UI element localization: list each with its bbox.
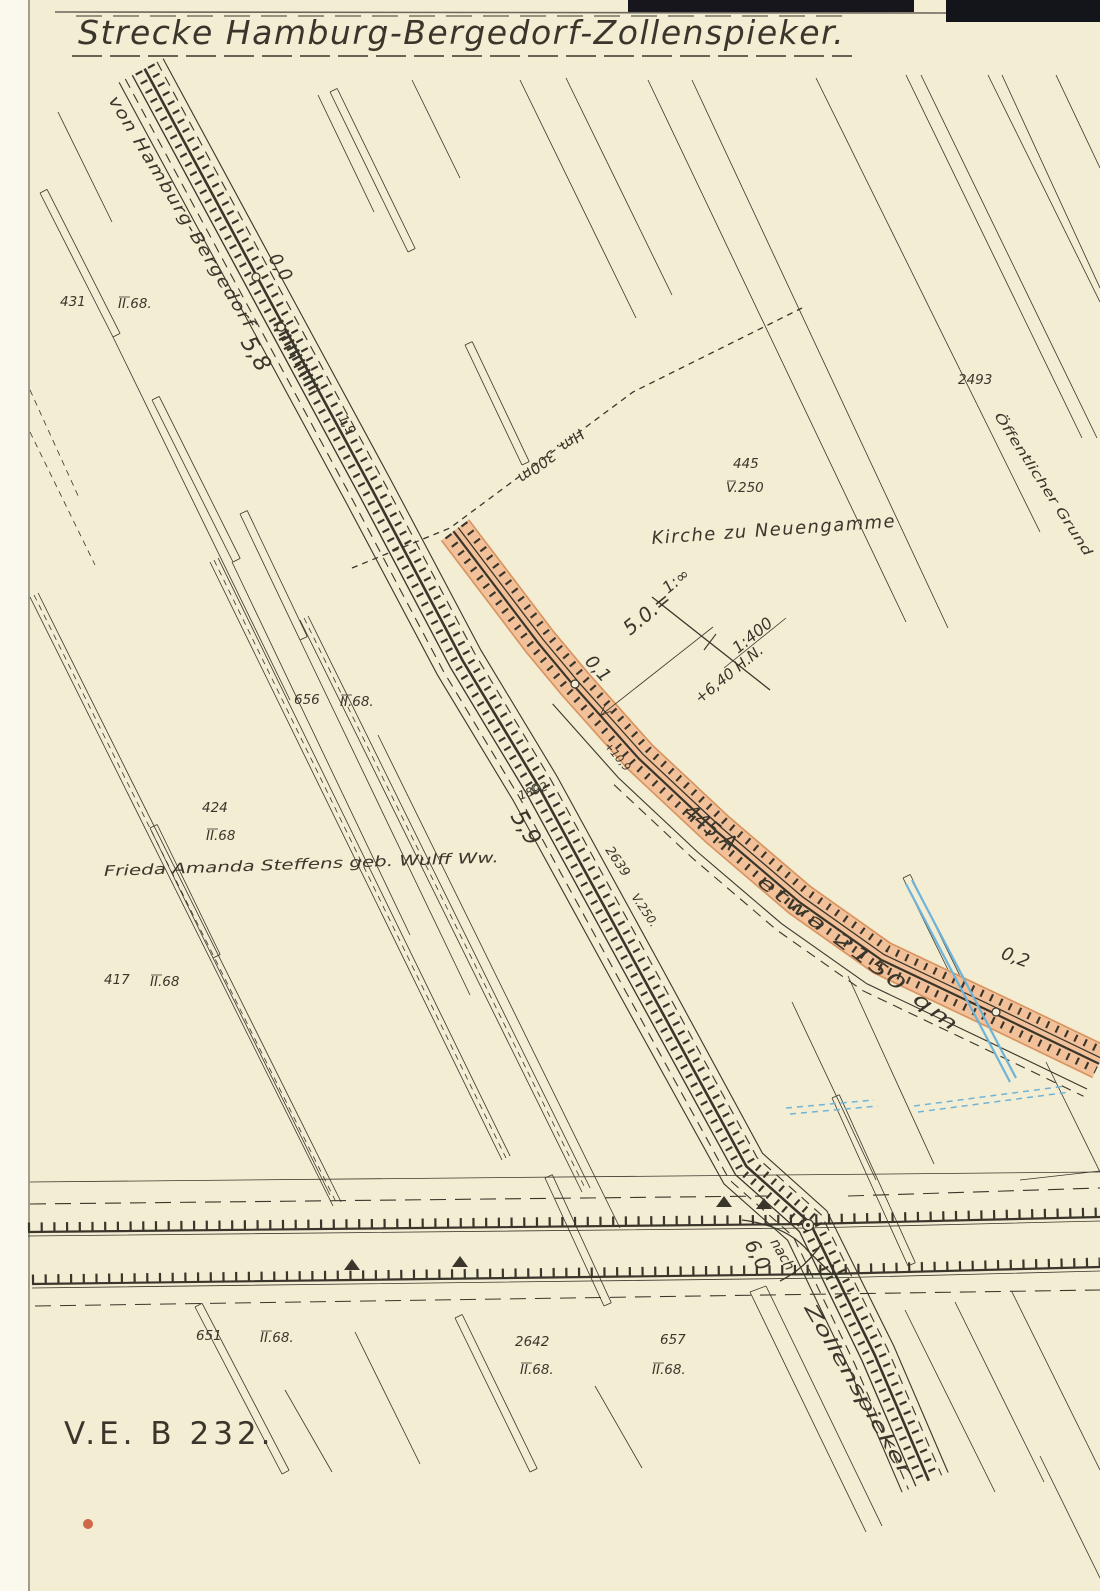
road-dashed [848,1188,1100,1196]
railway-layer [28,59,1100,1532]
ditch-line [30,597,333,1206]
ditch-bar-edge [47,189,120,333]
ditch-bar-edge [150,828,213,958]
ditch-bar-cap [40,189,47,193]
parcel-boundary-line [595,1386,642,1468]
parcel-boundary-line [285,1390,332,1472]
parcel-boundary-line [232,562,410,935]
parcel-657-class: II.68. [652,1362,686,1378]
parcel-lines-layer [30,75,1100,1578]
parcel-2639-number: 2639 [602,844,633,880]
parcel-boundary-line [520,80,636,318]
red-ink-dot [83,1519,93,1529]
ditch-bar-edge [472,342,529,462]
crossing-track-rail [28,1221,1100,1236]
ditch-bar-cap [604,1303,611,1306]
ditch-bar-cap [113,333,120,337]
parcel-boundary-line [692,80,948,628]
km-point-circle [277,323,285,331]
culvert-triangle [716,1196,732,1207]
parcel-2493-number: 2493 [958,372,992,388]
hectometer-note: Hm. 300m [514,425,588,487]
parcel-boundary-line [1040,1456,1100,1578]
gradient-height: +6,40 H.N. [691,641,767,707]
ditch-bar-cap [300,637,307,640]
parcel-boundary-line [1002,75,1100,288]
railway-track-ties [139,72,923,1484]
curve-rail [453,531,1099,1064]
annotation-lines-layer [352,308,802,716]
ditch-bar-edge [159,396,240,558]
ditch-bar-edge [337,89,415,249]
km-marker-0-2: 0,2 [998,943,1032,973]
parcel-boundary-line [213,958,330,1195]
ditch-bar-edge [552,1175,611,1303]
parcel-424-class: II.68 [206,828,235,844]
gradient-length: 5.0.= [618,587,676,640]
ditch-bar-cap [152,396,159,400]
parcel-445-number: 445 [733,456,759,472]
ditch-line [38,593,341,1202]
parcel-boundary-line [300,640,470,995]
road-dashed [35,1290,1100,1306]
parcel-boundary-line [792,1002,876,1180]
curve-rail [458,528,1100,1059]
parcel-boundary-line [921,75,1097,438]
scan-shadow-top [628,0,914,12]
km-marker-5-9: 5,9 [505,806,546,851]
parcel-417-class: II.68 [150,974,179,990]
km-point-circle [992,1008,1000,1016]
public-ground-note: Öffentlicher Grund [991,409,1097,560]
parcel-boundary-line [816,78,1040,532]
parcel-boundary-line [355,1332,420,1464]
ditch-bar-edge [40,193,113,337]
parcel-boundary-line [113,337,290,700]
gradient-pointer-line [600,627,713,716]
railway-rail [145,69,929,1481]
ditch-bar-edge [157,825,220,955]
km-marker-1-9: 1,9 [335,412,359,437]
branch-road-edge [750,1292,866,1532]
area-value-label: etwa 2150 qm [753,870,964,1037]
parcel-445-class: V.250 [726,480,764,496]
scanned-railway-map: Strecke Hamburg-Bergedorf-Zollenspieker.… [0,0,1100,1591]
ditch-bar-edge [832,1098,908,1266]
parcel-dashed-line [30,432,95,565]
parcel-656-class: II.68. [340,694,374,710]
parcel-656-number: 656 [294,692,320,708]
ditch-bar-cap [330,89,337,93]
parcel-2639-class: V.250. [629,891,662,930]
parcel-431-class: II.68. [118,296,152,312]
parcel-417-number: 417 [104,972,130,988]
road-dashed [30,1196,768,1204]
curve-track-ties [464,523,1100,1052]
parcel-2642-number: 2642 [515,1334,549,1350]
ditch-bar-edge [545,1178,604,1306]
km-point-circle [571,680,579,688]
km-marker-5-8: 5,8 [235,332,276,377]
curve-track-ties [448,535,1096,1070]
ditch-bar-edge [247,511,307,637]
culvert-triangle [344,1259,360,1270]
parcel-boundary-line [906,75,1082,438]
culvert-triangle [756,1198,772,1209]
ditch-bar-edge [330,92,408,252]
culvert-triangle [452,1256,468,1267]
ditch-bar-cap [240,511,247,514]
highlight-band-edge [469,520,1100,1047]
ditch-bar-edge [152,400,233,562]
parcel-boundary-line [318,95,374,212]
ditch-bar-edge [465,345,522,465]
junction-circle-center [806,1223,810,1227]
parcel-424-number: 424 [202,800,228,816]
parcel-boundary-line [988,75,1100,302]
ditch-bar-cap [530,1469,537,1473]
ditch-bar-cap [455,1315,462,1319]
km-point-circle [252,273,260,281]
scan-shadow-top-right [946,0,1100,22]
parcel-2642-class: II.68. [520,1362,554,1378]
blue-dashed-line [786,1100,874,1108]
labels-layer: Strecke Hamburg-Bergedorf-Zollenspieker.… [60,13,1097,1482]
parcel-boundary-line [566,78,672,295]
blue-dashed-line [790,1106,878,1114]
new-line-highlight-layer [442,520,1100,1078]
ditch-bar-cap [465,342,472,345]
parcel-657-number: 657 [660,1332,686,1348]
binding-margin [0,0,28,1591]
parcel-431-number: 431 [60,294,86,310]
culvert-hatch [278,322,316,392]
ditch-bar-edge [839,1095,915,1263]
parcel-651-class: II.68. [260,1330,294,1346]
parcel-boundary-line [1046,1062,1100,1172]
parcel-651-number: 651 [196,1328,222,1344]
parcel-boundary-line [58,112,112,222]
branch-road-cap [750,1286,766,1292]
page-title: Strecke Hamburg-Bergedorf-Zollenspieker. [78,13,845,52]
parcel-boundary-line [905,1310,995,1492]
sheet-number: V.E. B 232. [64,1416,275,1452]
ditch-bar-cap [233,558,240,562]
gradient-separator-tick [704,634,716,650]
parcel-boundary-line [1056,75,1100,168]
ditch-bar-cap [903,875,910,879]
road-edge [30,1172,1100,1182]
ditch-bar-cap [282,1470,289,1474]
ditch-bar-cap [408,249,415,253]
parcel-boundary-line [412,80,460,178]
church-note: Kirche zu Neuengamme [651,511,897,549]
railway-track-ties [151,65,935,1478]
